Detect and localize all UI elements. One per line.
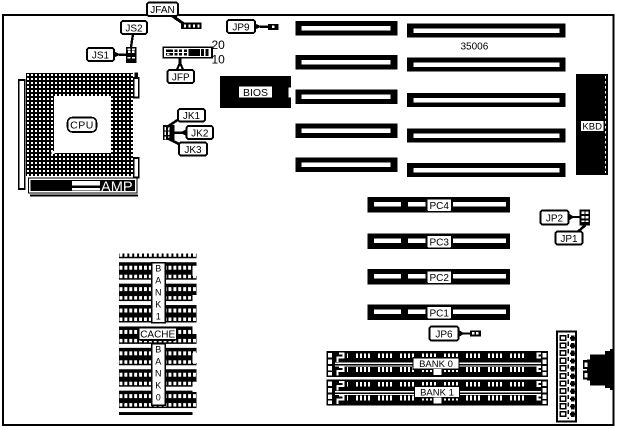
svg-text:0: 0: [156, 393, 161, 403]
svg-text:N: N: [155, 369, 162, 379]
svg-text:JK2: JK2: [191, 128, 209, 139]
svg-text:A: A: [155, 357, 161, 367]
svg-text:BIOS: BIOS: [243, 87, 268, 99]
svg-text:PC2: PC2: [429, 273, 449, 284]
svg-text:K: K: [155, 300, 161, 310]
svg-text:20: 20: [212, 38, 226, 52]
svg-text:CACHE: CACHE: [140, 330, 175, 341]
svg-text:AMP: AMP: [101, 179, 133, 195]
svg-text:PC4: PC4: [429, 201, 449, 212]
svg-text:35006: 35006: [461, 42, 489, 53]
svg-text:BANK 0: BANK 0: [419, 359, 453, 370]
svg-text:JS1: JS1: [92, 50, 110, 61]
svg-text:JFP: JFP: [172, 72, 190, 83]
svg-text:BANK 1: BANK 1: [420, 388, 454, 399]
svg-text:K: K: [155, 381, 161, 391]
svg-text:JK3: JK3: [184, 145, 202, 156]
svg-text:JP2: JP2: [546, 214, 564, 225]
svg-text:B: B: [155, 345, 161, 355]
svg-text:JS2: JS2: [125, 23, 143, 34]
svg-text:JFAN: JFAN: [150, 5, 174, 16]
svg-text:PC1: PC1: [429, 309, 449, 320]
svg-text:CPU: CPU: [70, 120, 94, 132]
svg-text:JP1: JP1: [560, 234, 578, 245]
svg-text:JP9: JP9: [232, 22, 250, 33]
svg-text:10: 10: [212, 53, 226, 67]
svg-text:JK1: JK1: [183, 111, 201, 122]
svg-text:JP6: JP6: [435, 330, 453, 341]
svg-text:KBD: KBD: [582, 122, 602, 133]
svg-text:A: A: [155, 276, 161, 286]
svg-text:PC3: PC3: [429, 238, 449, 249]
svg-text:1: 1: [156, 312, 161, 322]
svg-text:N: N: [155, 288, 162, 298]
svg-text:B: B: [155, 264, 161, 274]
